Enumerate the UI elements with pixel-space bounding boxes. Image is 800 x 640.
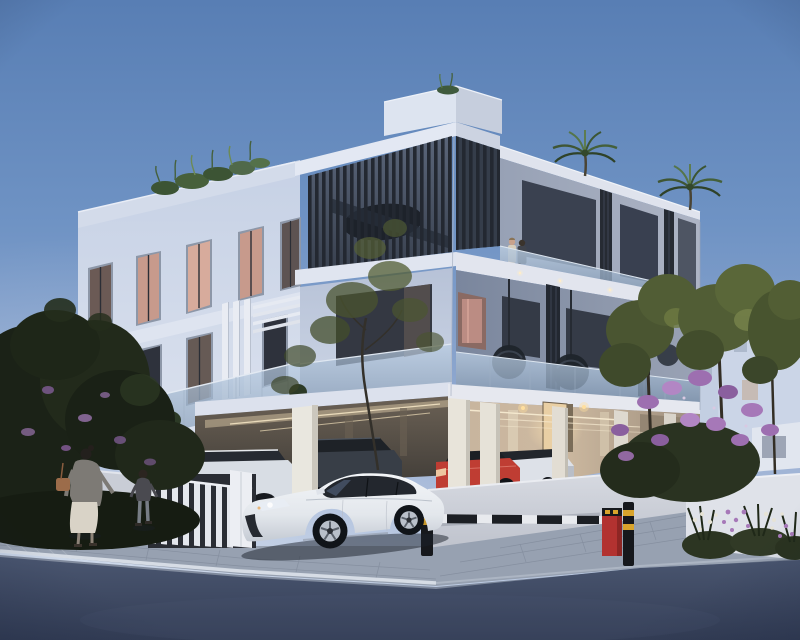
architectural-render: [0, 0, 800, 640]
vignette: [0, 0, 800, 640]
scene-canvas: [0, 0, 800, 640]
